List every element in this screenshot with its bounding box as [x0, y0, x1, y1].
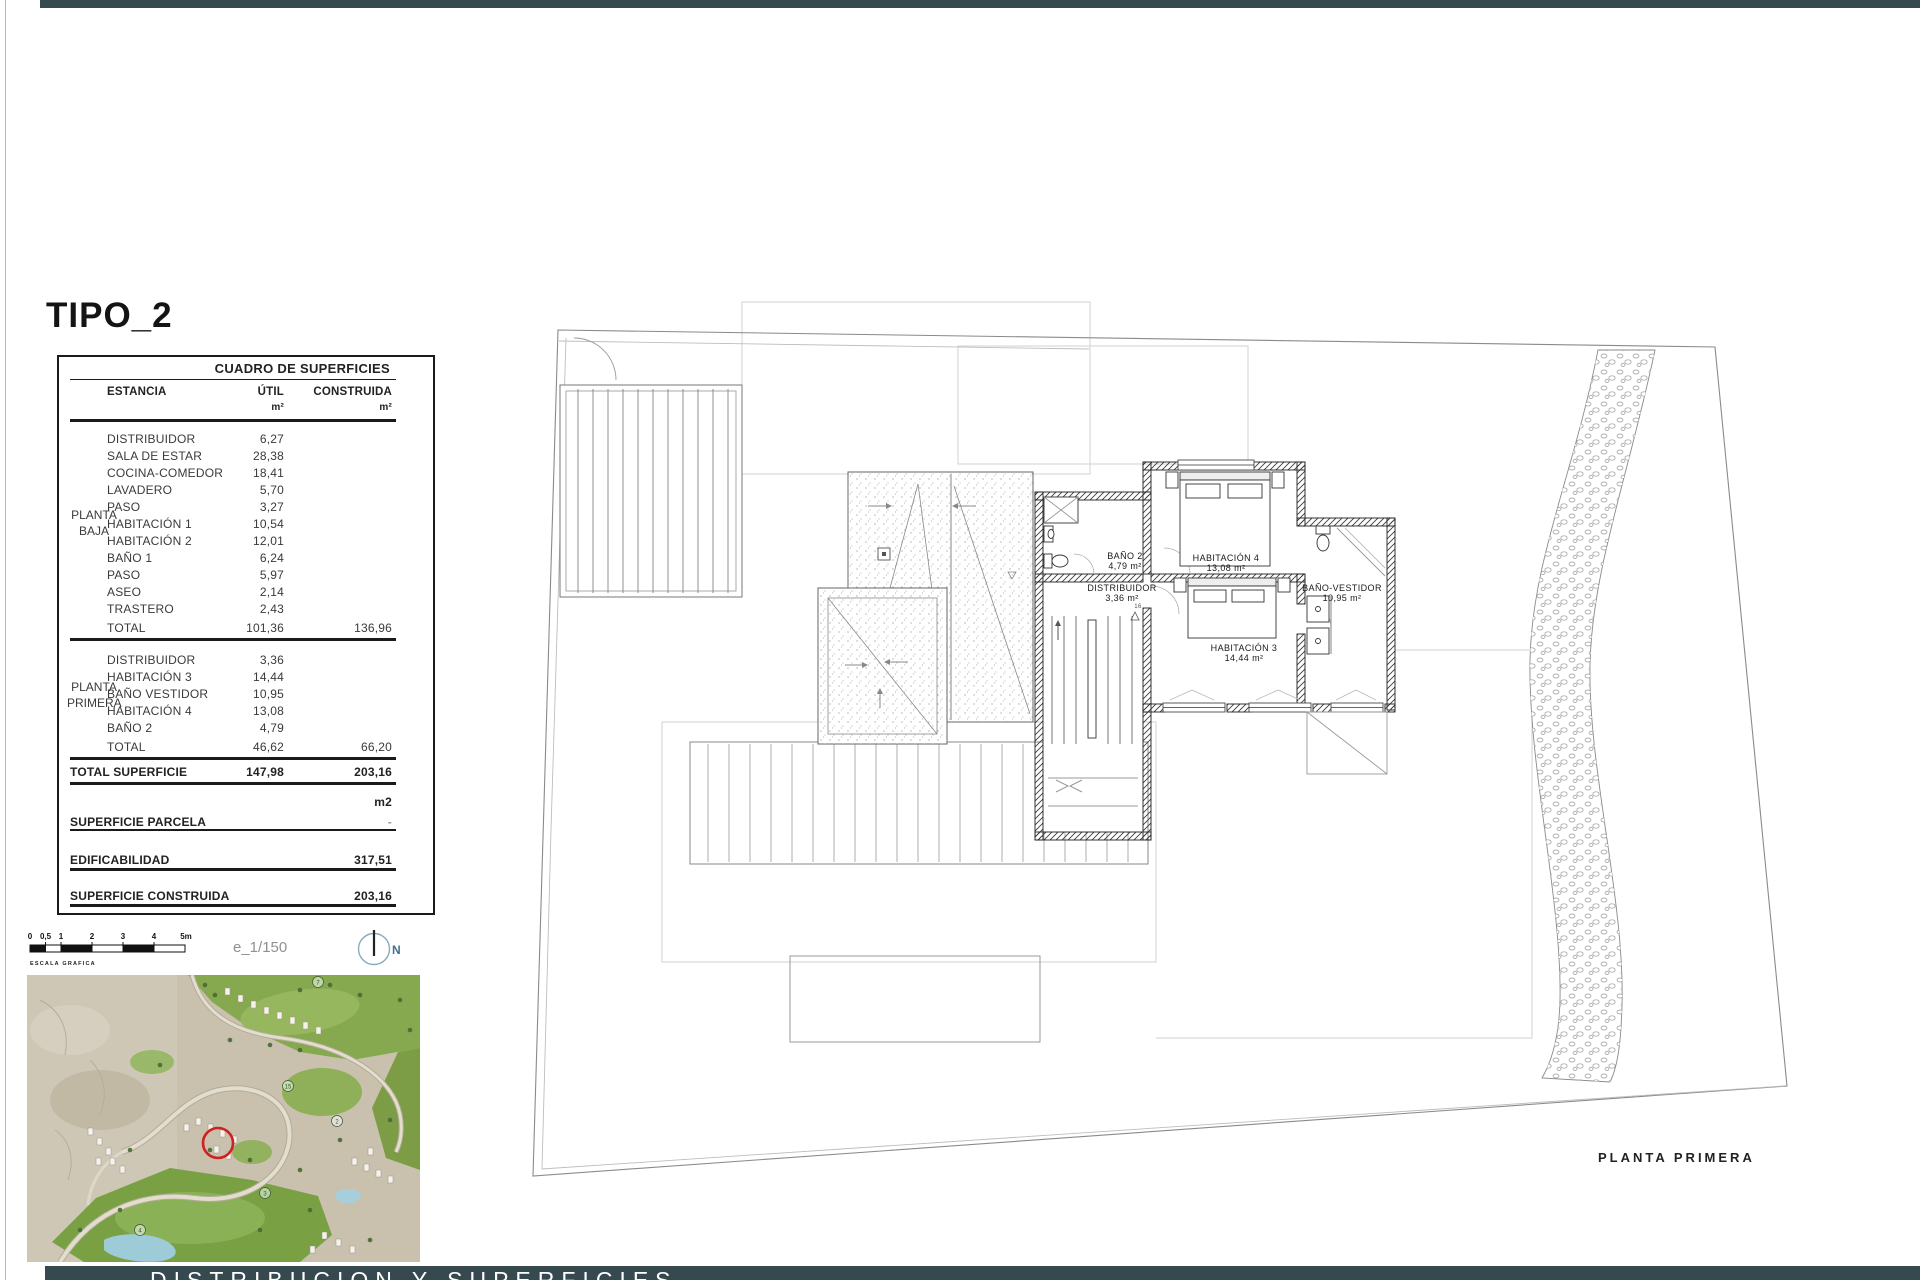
unit-label: m² — [229, 402, 284, 413]
footer-bar: DISTRIBUCION Y SUPERFICIES — [45, 1266, 1920, 1280]
pergola-deck — [560, 385, 742, 597]
room-area-habitacion3: 14,44 m² — [1225, 653, 1264, 663]
table-row: DISTRIBUIDOR6,27 — [59, 430, 433, 447]
column-header-util: ÚTIL — [229, 386, 284, 398]
table-row: COCINA-COMEDOR18,41 — [59, 464, 433, 481]
room-area-bano2: 4,79 m² — [1108, 561, 1141, 571]
superficie-parcela-row: SUPERFICIE PARCELA - — [59, 813, 433, 830]
north-arrow-icon: N — [359, 930, 401, 965]
scale-ratio-label: e_1/150 — [233, 939, 287, 956]
room-area-distribuidor: 3,36 m² — [1105, 593, 1138, 603]
table-row: DISTRIBUIDOR3,36 — [59, 651, 433, 668]
site-map: 7 15 2 3 4 — [27, 975, 420, 1262]
room-area-habitacion4: 13,08 m² — [1207, 563, 1246, 573]
scale-bar: 0 0,5 1 2 3 4 5m ESCALA GRAFICA — [28, 932, 192, 967]
scale-caption: ESCALA GRAFICA — [30, 961, 96, 967]
planta-primera-total-row: TOTAL 46,62 66,20 — [59, 738, 433, 755]
table-row: SALA DE ESTAR28,38 — [59, 447, 433, 464]
stair-count-note: 16 — [1134, 604, 1142, 610]
table-unit-row: m² m² — [59, 399, 433, 416]
map-badge: 15 — [285, 1085, 292, 1091]
table-rule — [70, 379, 396, 380]
scale-tick: 2 — [90, 932, 95, 941]
surface-table: CUADRO DE SUPERFICIES ESTANCIA ÚTIL CONS… — [57, 355, 435, 915]
table-rule — [70, 904, 396, 907]
stone-path — [1530, 350, 1655, 1082]
table-header-row: ESTANCIA ÚTIL CONSTRUIDA — [59, 383, 433, 400]
plan-sheet-page: TIPO_2 — [0, 0, 1920, 1280]
room-label-habitacion3: HABITACIÓN 3 — [1211, 643, 1278, 653]
room-label-bano2: BAÑO 2 — [1107, 551, 1142, 561]
planta-baja-total-row: TOTAL 101,36 136,96 — [59, 619, 433, 636]
table-row: TRASTERO2,43 — [59, 600, 433, 617]
table-row: PASO5,97 — [59, 566, 433, 583]
group-label-planta-primera: PLANTA PRIMERA — [67, 679, 121, 711]
table-title: CUADRO DE SUPERFICIES — [215, 361, 390, 376]
scale-tick: 4 — [152, 932, 157, 941]
plan-caption: PLANTA PRIMERA — [1598, 1150, 1755, 1165]
room-label-distribuidor: DISTRIBUIDOR — [1087, 583, 1156, 593]
scale-tick: 1 — [59, 932, 64, 941]
edificabilidad-row: EDIFICABILIDAD 317,51 — [59, 851, 433, 868]
table-row: BAÑO 16,24 — [59, 549, 433, 566]
superficie-construida-row: SUPERFICIE CONSTRUIDA 203,16 — [59, 887, 433, 904]
scale-tick: 0 — [28, 932, 33, 941]
scale-tick: 0,5 — [40, 932, 52, 941]
table-row: ASEO2,14 — [59, 583, 433, 600]
column-header-construida: CONSTRUIDA — [284, 386, 392, 398]
table-rule — [70, 782, 396, 785]
table-rule — [70, 638, 396, 641]
group-label-planta-baja: PLANTA BAJA — [67, 507, 121, 539]
unit-label: m² — [284, 402, 392, 413]
room-label-habitacion4: HABITACIÓN 4 — [1193, 553, 1260, 563]
balcony — [1307, 712, 1387, 774]
roof-secondary — [818, 588, 947, 744]
table-rule — [70, 868, 396, 871]
unit-m2-label: m2 — [284, 795, 392, 809]
north-label: N — [392, 943, 401, 957]
scale-tick: 3 — [121, 932, 126, 941]
footer-title: DISTRIBUCION Y SUPERFICIES — [150, 1267, 1920, 1280]
room-area-bano-vestidor: 10,95 m² — [1323, 593, 1362, 603]
scale-tick: 5m — [180, 932, 192, 941]
column-header-estancia: ESTANCIA — [107, 386, 229, 398]
table-row: BAÑO 24,79 — [59, 719, 433, 736]
table-row: LAVADERO5,70 — [59, 481, 433, 498]
room-label-bano-vestidor: BAÑO-VESTIDOR — [1302, 583, 1382, 593]
total-superficie-row: TOTAL SUPERFICIE 147,98 203,16 — [59, 763, 433, 780]
table-rule — [70, 757, 396, 760]
table-rule — [70, 419, 396, 422]
lawn-rectangle — [790, 956, 1040, 1042]
unit-m2-row: m2 — [59, 793, 433, 810]
table-rule — [70, 829, 396, 831]
